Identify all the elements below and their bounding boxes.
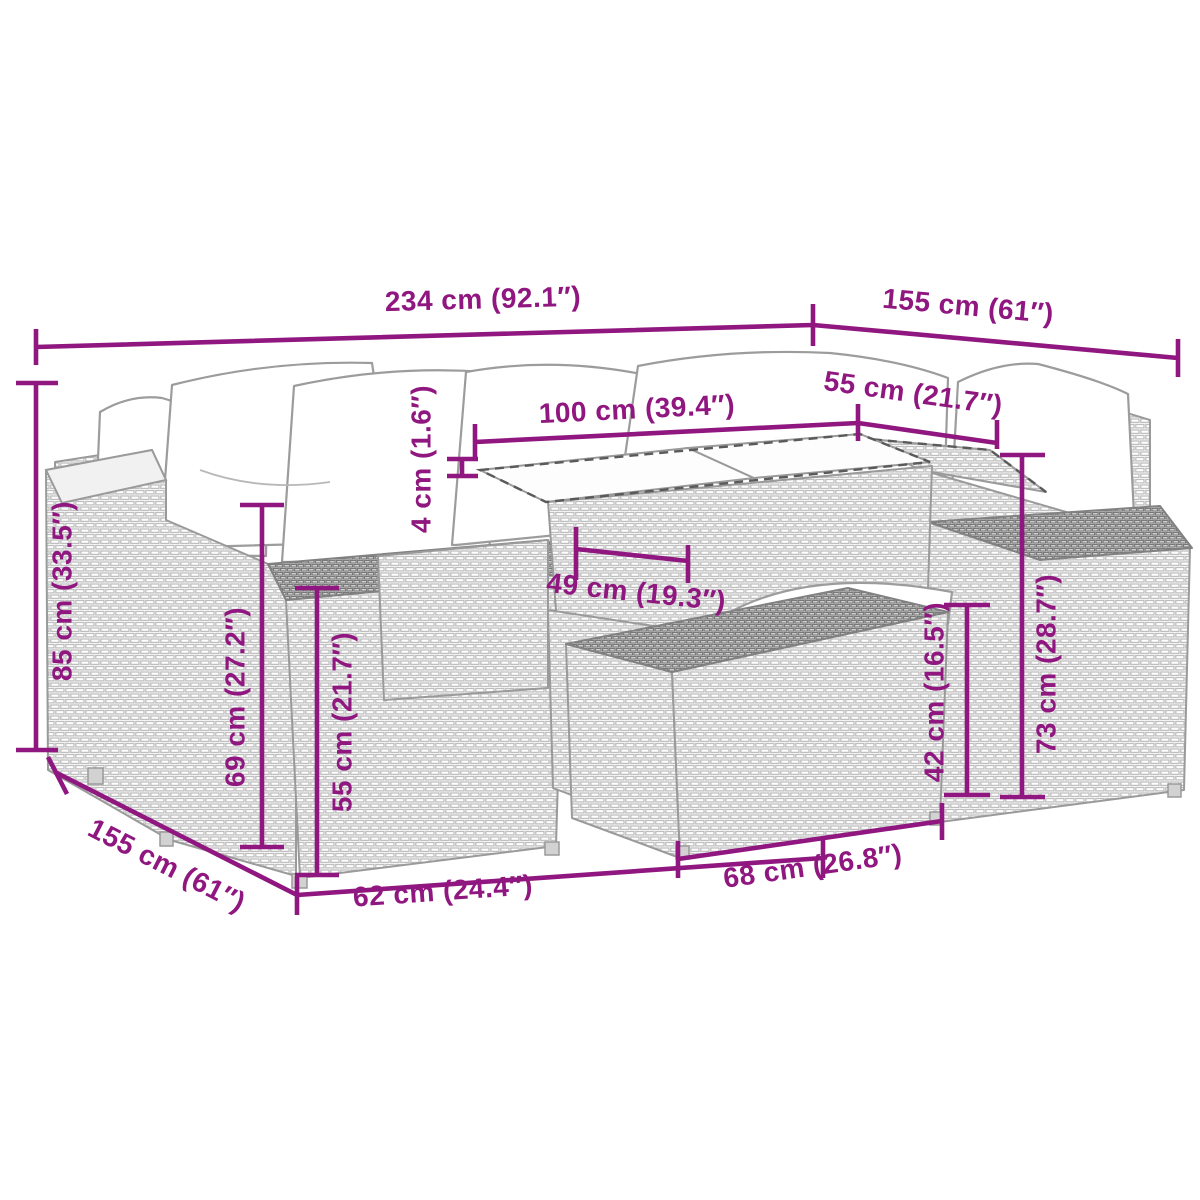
dim-label-ottoman-height: 42 cm (16.5″): [918, 602, 949, 782]
furniture-foot: [1168, 784, 1181, 797]
dim-label-overall-width: 234 cm (92.1″): [384, 281, 581, 317]
furniture-foot: [88, 768, 103, 784]
dim-label-arm-height: 69 cm (27.2″): [219, 607, 250, 787]
dim-label-seat-block-height: 55 cm (21.7″): [326, 632, 357, 812]
dimension-diagram: 234 cm (92.1″) 155 cm (61″) 100 cm (39.4…: [0, 0, 1200, 1200]
dim-label-right-arm-height: 73 cm (28.7″): [1030, 574, 1061, 754]
dim-label-tabletop-thickness: 4 cm (1.6″): [405, 385, 436, 533]
dim-label-seat-width: 62 cm (24.4″): [352, 869, 534, 912]
ottoman-side: [566, 644, 680, 858]
dim-label-overall-depth-right: 155 cm (61″): [881, 283, 1055, 329]
furniture-foot: [545, 842, 559, 855]
back-seat-front: [378, 540, 548, 700]
dim-label-back-height: 85 cm (33.5″): [46, 501, 77, 681]
furniture-foot: [160, 832, 173, 846]
dim-overall-width: 234 cm (92.1″): [36, 281, 813, 365]
garden-set-dimension-drawing: 234 cm (92.1″) 155 cm (61″) 100 cm (39.4…: [0, 0, 1200, 1200]
